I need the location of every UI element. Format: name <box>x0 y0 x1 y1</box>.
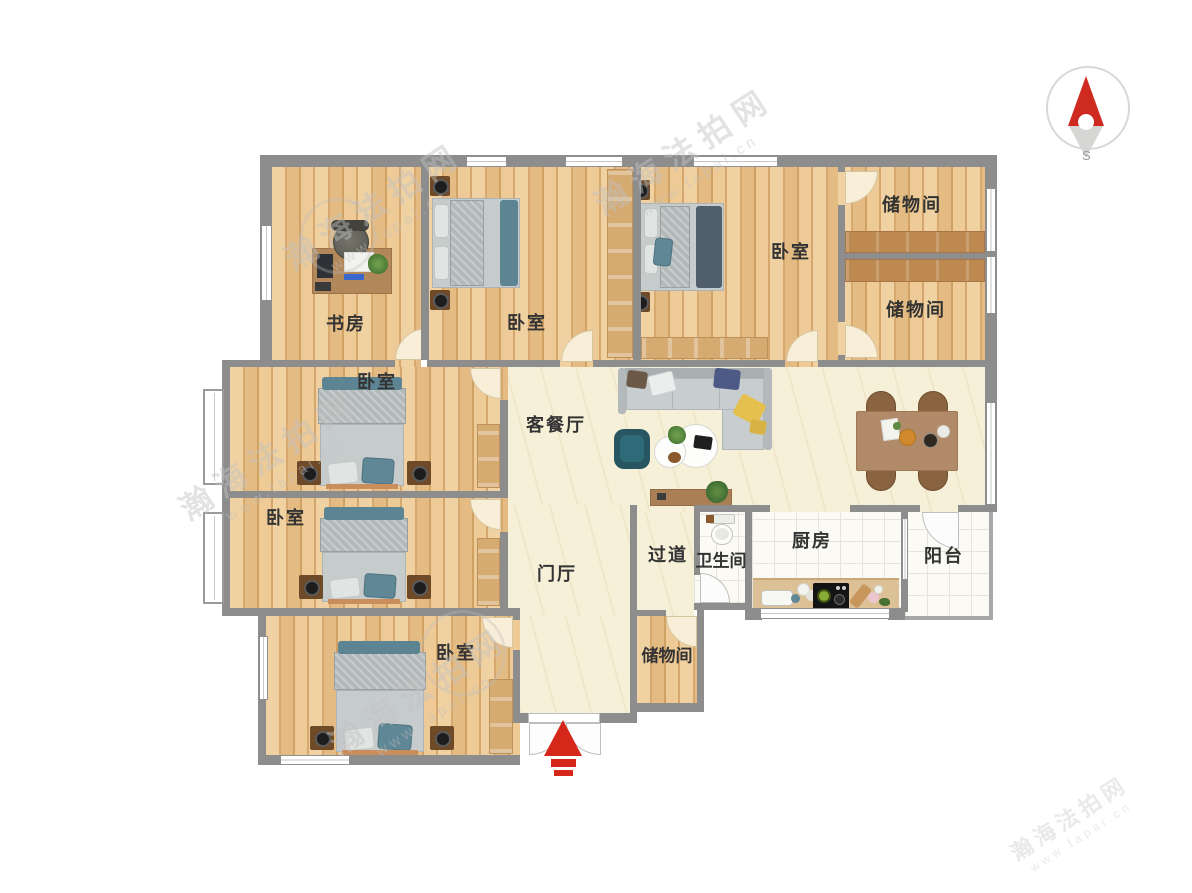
storage-bottom-label: 储物间 <box>642 642 693 667</box>
entrance-arrow-bar <box>551 759 576 767</box>
wall-bedroom-storage-divider <box>838 205 845 253</box>
wall-bedroom3-bottom-outer <box>258 755 282 765</box>
closet <box>641 337 768 359</box>
bedroom-left-middle-label: 卧室 <box>266 504 306 530</box>
watermark-brand: 瀚海法拍网 <box>1003 767 1134 867</box>
sofa-pillow <box>626 370 648 390</box>
bed-pillow <box>377 723 413 751</box>
kitchen-plate <box>874 585 883 594</box>
bed-pillow <box>363 573 397 599</box>
watermark-stamp <box>300 198 376 274</box>
console-item <box>657 493 666 500</box>
wall-balcony-glass-bottom <box>905 616 993 620</box>
bed-pillow <box>361 457 395 485</box>
kitchen-bowl <box>791 594 800 603</box>
watermark: 瀚海法拍网 www.fapai.cn <box>1003 767 1141 879</box>
balcony-label: 阳台 <box>924 542 964 568</box>
wall-bedroom-storage-divider <box>838 253 845 322</box>
entrance-hall-floor-lower <box>520 616 630 713</box>
nightstand <box>430 726 454 750</box>
wardrobe <box>607 169 633 358</box>
wall-bedroom3-hall <box>513 650 520 715</box>
bay-window <box>203 512 224 604</box>
coffee-table-plant <box>668 426 686 444</box>
window <box>259 636 268 700</box>
stove-pan <box>817 589 831 603</box>
nightstand <box>430 176 450 196</box>
wall-bedroom3-bottom-outer <box>348 755 520 765</box>
entrance-hall-label: 门厅 <box>537 560 577 586</box>
entrance-arrow <box>544 720 582 756</box>
dining-plate <box>937 425 950 438</box>
nightstand <box>407 461 431 485</box>
bay-window <box>203 389 224 485</box>
nightstand <box>430 290 450 310</box>
wall-bedrooms-right <box>500 532 508 608</box>
window <box>565 156 623 167</box>
window <box>261 225 272 301</box>
bed-pillow <box>343 726 375 751</box>
wall-bedrooms-left-divider1 <box>222 491 508 498</box>
bathroom-item <box>706 515 714 523</box>
window <box>693 156 778 167</box>
bedroom-left-top-label: 卧室 <box>357 368 397 394</box>
watermark-stamp <box>420 610 506 696</box>
kitchen-label: 厨房 <box>792 527 832 553</box>
lamp-icon <box>412 466 428 482</box>
sofa-pillow <box>749 419 767 436</box>
kitchen-sink <box>761 590 793 606</box>
bathroom-label: 卫生间 <box>696 547 747 572</box>
wall-bedrooms-divider-top <box>633 167 641 360</box>
bed-quilt <box>320 518 408 552</box>
wall-storage-bottom-right <box>697 610 704 712</box>
storage-right-bottom-label: 储物间 <box>886 296 946 322</box>
coffee-table-bowl <box>668 452 681 463</box>
storage-shelf <box>845 259 985 282</box>
stove-knob <box>836 586 840 590</box>
bed-frame <box>328 599 400 604</box>
bed-quilt <box>450 200 484 286</box>
wall-balcony-top <box>905 505 920 512</box>
sofa-armrest <box>764 368 772 450</box>
wall-hall-corridor <box>630 505 637 715</box>
compass-hub <box>1078 114 1094 130</box>
wall-kitchen-top <box>850 505 905 512</box>
bed-runner <box>338 641 420 654</box>
bed-frame <box>326 484 398 489</box>
window <box>986 256 996 314</box>
wall-bedrooms-right <box>500 400 508 491</box>
kitchen-greens <box>879 598 890 606</box>
bed-pillow <box>434 246 449 280</box>
wall-band-middle <box>222 360 395 367</box>
sofa-pillow <box>713 368 741 391</box>
nightstand <box>407 575 431 599</box>
lamp-icon <box>435 731 451 747</box>
wall-hall-bottom <box>600 713 637 723</box>
sofa-armrest <box>618 368 626 414</box>
window <box>760 608 890 619</box>
wall-storage-bottom-top <box>637 610 666 616</box>
bed-pillow <box>327 460 359 485</box>
wall-balcony-glass-right <box>989 512 993 620</box>
wall-hall-bottom <box>513 713 528 723</box>
stove-knob <box>842 586 846 590</box>
bed-pillow <box>653 237 674 267</box>
wall-bathroom-top <box>694 505 752 512</box>
lamp-icon <box>433 179 449 195</box>
storage-shelf <box>845 231 985 253</box>
entrance-arrow-bar <box>554 770 573 776</box>
floor-plan: 书房 卧室 卧室 储物间 储物间 卧室 卧室 卧室 客餐厅 门厅 过道 卫生间 … <box>0 0 1192 893</box>
watermark-url: www.fapai.cn <box>1021 794 1142 879</box>
bed-runner <box>324 507 404 520</box>
window <box>466 156 507 167</box>
desk-items <box>315 282 331 291</box>
wall-kitchen-top <box>752 505 770 512</box>
bed-pillow <box>434 204 449 238</box>
window <box>280 755 350 765</box>
wardrobe <box>477 538 500 606</box>
wall-band-middle <box>818 360 997 367</box>
study-label: 书房 <box>326 310 366 336</box>
lamp-icon <box>302 466 318 482</box>
armchair-cushion <box>620 435 644 462</box>
compass-south-label: S <box>1082 148 1091 163</box>
wall-bedroom-storage-divider <box>838 167 845 172</box>
lamp-icon <box>304 580 320 596</box>
living-dining-label: 客餐厅 <box>526 411 586 437</box>
dining-dish <box>899 429 916 446</box>
wall-study-bedroom-divider <box>421 167 429 360</box>
window <box>902 518 908 580</box>
bed-runner <box>500 200 518 286</box>
bedroom-top-right-label: 卧室 <box>771 238 811 264</box>
wall-kitchen-bottom <box>888 608 905 620</box>
stove-burner <box>834 594 845 605</box>
wall-top-outer <box>265 155 997 167</box>
coffee-table-tray <box>693 435 713 450</box>
keyboard <box>344 274 364 280</box>
wall-storage-bottom-bottom <box>630 703 704 712</box>
wardrobe <box>489 679 513 754</box>
dining-bowl <box>923 433 938 448</box>
wall-bedroom3-hall <box>513 616 520 620</box>
storage-right-top-label: 储物间 <box>882 191 942 217</box>
nightstand <box>297 461 321 485</box>
lamp-icon <box>315 731 331 747</box>
lamp-icon <box>433 293 449 309</box>
bed-pillow <box>644 208 658 238</box>
lamp-icon <box>412 580 428 596</box>
nightstand <box>310 726 334 750</box>
nightstand <box>299 575 323 599</box>
wall-balcony-top <box>958 505 997 512</box>
wall-band-middle <box>427 360 560 367</box>
bedroom-top-middle-label: 卧室 <box>507 309 547 335</box>
wall-bathroom-bottom <box>694 603 752 610</box>
corridor-label: 过道 <box>648 541 688 567</box>
bed-quilt <box>334 652 426 690</box>
wall-band-middle <box>593 360 785 367</box>
wardrobe <box>477 424 500 488</box>
desk-plant <box>368 254 388 274</box>
bed-runner <box>696 206 722 288</box>
wall-storage-divider <box>845 253 985 259</box>
toilet-seat <box>715 528 729 540</box>
window <box>986 402 996 505</box>
window <box>986 188 996 252</box>
bed-pillow <box>329 576 361 599</box>
